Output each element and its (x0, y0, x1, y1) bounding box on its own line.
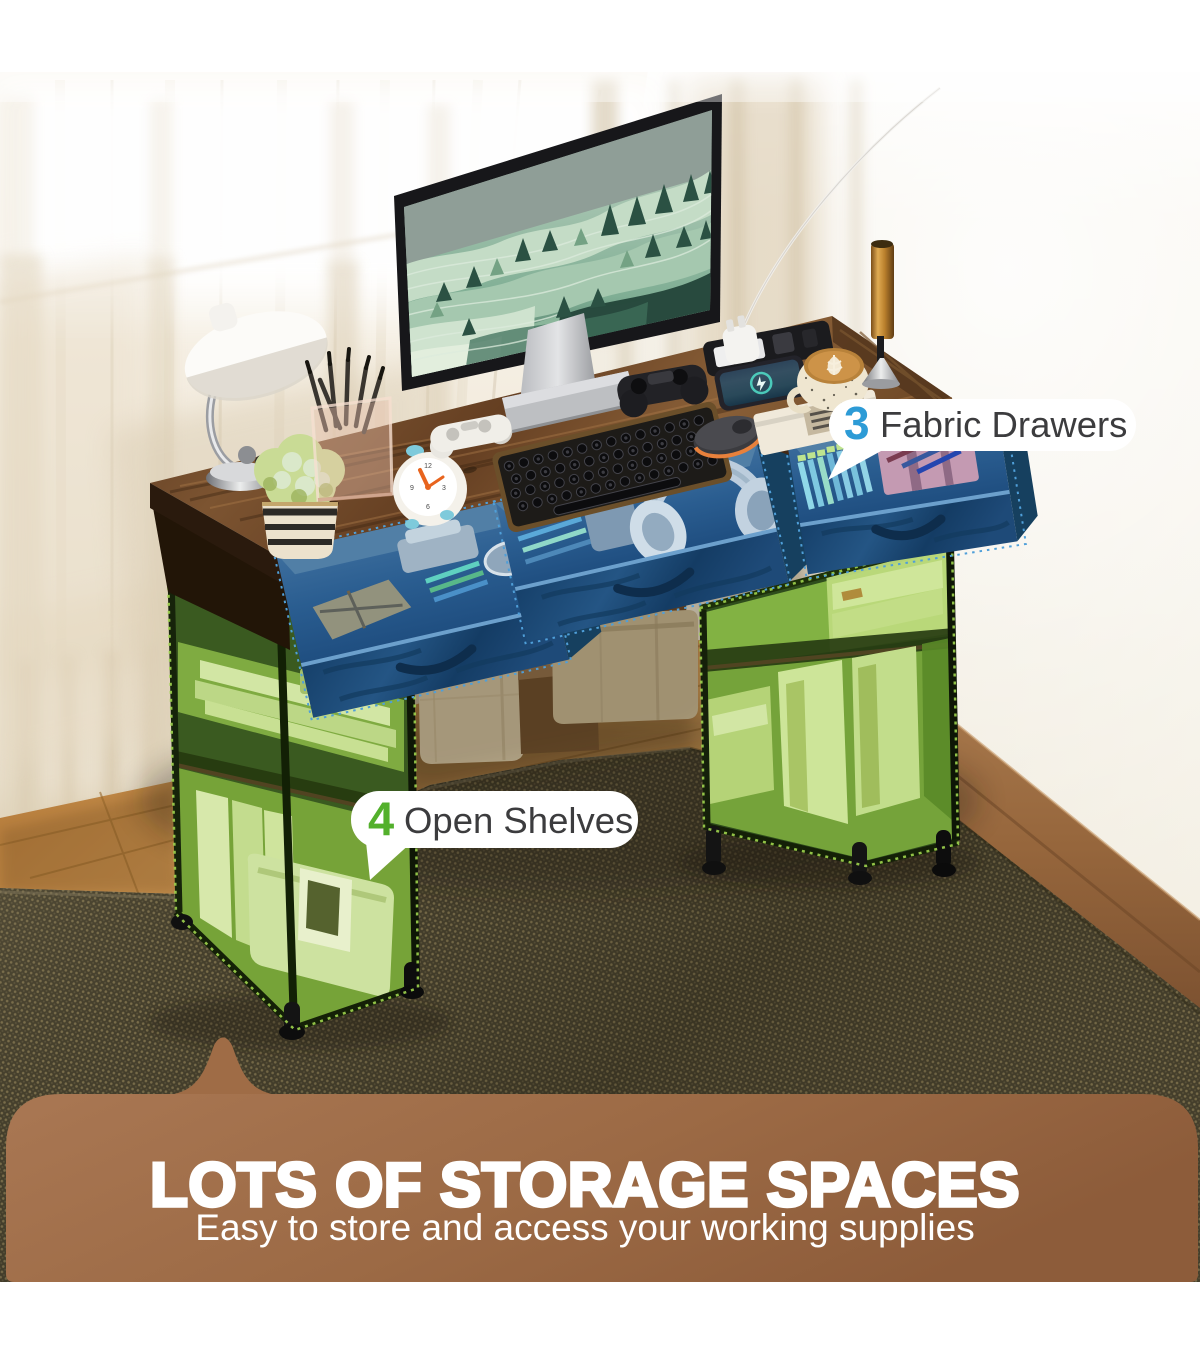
svg-text:Open Shelves: Open Shelves (404, 800, 633, 841)
svg-text:12: 12 (424, 463, 432, 470)
svg-text:3: 3 (844, 397, 870, 449)
svg-text:9: 9 (410, 485, 414, 492)
svg-text:Fabric Drawers: Fabric Drawers (880, 404, 1127, 445)
svg-text:6: 6 (426, 504, 430, 511)
svg-text:3: 3 (442, 485, 446, 492)
svg-text:4: 4 (368, 792, 394, 845)
svg-text:Easy to store and access your: Easy to store and access your working su… (195, 1207, 974, 1248)
